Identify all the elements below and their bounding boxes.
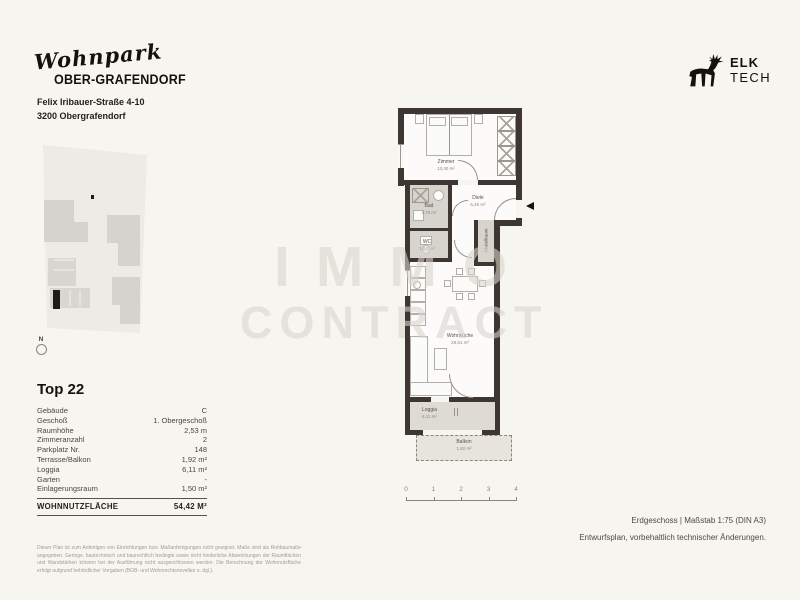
wardrobe-cell bbox=[497, 161, 516, 176]
coffee-table bbox=[434, 348, 447, 370]
kitchen-unit bbox=[410, 302, 426, 314]
wardrobe-cell bbox=[497, 131, 516, 146]
nightstand bbox=[415, 114, 424, 124]
address-line-2: 3200 Obergrafendorf bbox=[37, 111, 126, 121]
compass-north-label: N bbox=[33, 336, 49, 343]
nightstand bbox=[474, 114, 483, 124]
chair bbox=[456, 293, 463, 300]
entrance-arrow-icon bbox=[526, 202, 534, 210]
table-row: GebäudeC bbox=[37, 406, 207, 416]
washbasin bbox=[433, 190, 444, 201]
scale-tick-label: 1 bbox=[432, 486, 436, 493]
room-label-wohnkueche: Wohnküche 28,51 m² bbox=[430, 334, 490, 345]
draft-note: Entwurfsplan, vorbehaltlich technischer … bbox=[579, 533, 766, 542]
chair bbox=[479, 280, 486, 287]
window bbox=[398, 144, 404, 170]
floorplan-sheet: Wohnpark OBER-GRAFENDORF Felix Iribauer-… bbox=[0, 0, 800, 600]
site-plan bbox=[36, 140, 148, 336]
plan-info: Erdgeschoss | Maßstab 1:75 (DIN A3) bbox=[631, 516, 766, 525]
disclaimer-text: Dieser Plan ist zum Anfertigen von Einri… bbox=[37, 545, 301, 575]
chair bbox=[468, 293, 475, 300]
room-label-diele: Diele 6,45 m² bbox=[458, 196, 498, 207]
sofa bbox=[410, 336, 428, 384]
wall bbox=[410, 258, 452, 262]
sofa bbox=[410, 382, 452, 396]
bed-divider bbox=[449, 115, 450, 155]
brand-name: OBER-GRAFENDORF bbox=[54, 72, 186, 87]
table-row: Parkplatz Nr.148 bbox=[37, 445, 207, 455]
table-row: Zimmeranzahl2 bbox=[37, 435, 207, 445]
wall bbox=[410, 228, 448, 231]
kitchen-unit bbox=[410, 314, 426, 326]
brand-script-logo: Wohnpark bbox=[33, 38, 163, 74]
logo-text-tech: TECH bbox=[730, 70, 771, 85]
scale-bar: 0 1 2 3 4 bbox=[406, 486, 516, 503]
table-row: Einlagerungsraum1,50 m² bbox=[37, 484, 207, 494]
shower bbox=[412, 188, 429, 203]
wardrobe-cell bbox=[497, 146, 516, 161]
table-row: Loggia6,11 m² bbox=[37, 465, 207, 475]
scale-tick-label: 2 bbox=[459, 486, 463, 493]
unit-data-table: GebäudeC Geschoß1. Obergeschoß Raumhöhe2… bbox=[37, 406, 207, 516]
scale-tick-label: 0 bbox=[404, 486, 408, 493]
loggia-dimension-marks bbox=[457, 408, 458, 416]
table-row: Terrasse/Balkon1,92 m² bbox=[37, 455, 207, 465]
wall bbox=[448, 185, 452, 230]
room-label-bad: Bad 3,70 m² bbox=[412, 204, 446, 215]
table-row: Garten- bbox=[37, 475, 207, 485]
room-label-balkon: Balkon 1,92 m² bbox=[444, 440, 484, 451]
room-label-loggia: Loggia 6,11 m² bbox=[422, 408, 462, 419]
wall bbox=[405, 402, 410, 433]
total-area-row: Wohnnutzfläche54,42 m² bbox=[37, 499, 207, 516]
scale-tick-label: 3 bbox=[487, 486, 491, 493]
dining-table bbox=[452, 276, 478, 292]
room-label-wc: WC 1,63 m² bbox=[412, 240, 442, 251]
address-line-1: Felix Iribauer-Straße 4-10 bbox=[37, 97, 145, 107]
wall bbox=[494, 226, 500, 402]
scale-tick-label: 4 bbox=[514, 486, 518, 493]
wall bbox=[398, 108, 404, 144]
room-label-zimmer: Zimmer 13,40 m² bbox=[416, 160, 476, 171]
elk-icon bbox=[680, 52, 726, 90]
wall bbox=[449, 397, 500, 402]
room-label-abstellraum: Abstellraum bbox=[484, 225, 489, 257]
wall bbox=[405, 430, 423, 435]
unit-title: Top 22 bbox=[37, 381, 84, 398]
floor-plan: Zimmer 13,40 m² Diele 6,45 m² Bad 3,70 m… bbox=[386, 100, 538, 480]
window-line bbox=[400, 144, 401, 168]
kitchen-unit bbox=[410, 290, 426, 302]
highlighted-building bbox=[53, 290, 60, 309]
wall bbox=[495, 402, 500, 433]
chair bbox=[456, 268, 463, 275]
kitchen-sink bbox=[413, 281, 421, 289]
table-row: Raumhöhe2,53 m bbox=[37, 426, 207, 436]
chair bbox=[444, 280, 451, 287]
wall bbox=[474, 220, 478, 266]
chair bbox=[468, 268, 475, 275]
wall bbox=[516, 108, 522, 200]
site-plan-map bbox=[36, 140, 148, 336]
table-row: Geschoß1. Obergeschoß bbox=[37, 416, 207, 426]
compass-circle-icon bbox=[36, 344, 47, 355]
window-line bbox=[407, 270, 408, 296]
wardrobe-cell bbox=[497, 116, 516, 131]
pillow bbox=[429, 117, 446, 126]
wall bbox=[482, 430, 500, 435]
kitchen-unit bbox=[410, 266, 426, 278]
loggia-dimension-marks bbox=[454, 408, 455, 416]
logo-text-elk: ELK bbox=[730, 55, 759, 70]
wall bbox=[478, 180, 522, 185]
pillow bbox=[451, 117, 468, 126]
elk-tech-logo: ELK TECH bbox=[680, 48, 780, 96]
wall bbox=[474, 262, 500, 266]
north-compass: N bbox=[33, 336, 49, 360]
